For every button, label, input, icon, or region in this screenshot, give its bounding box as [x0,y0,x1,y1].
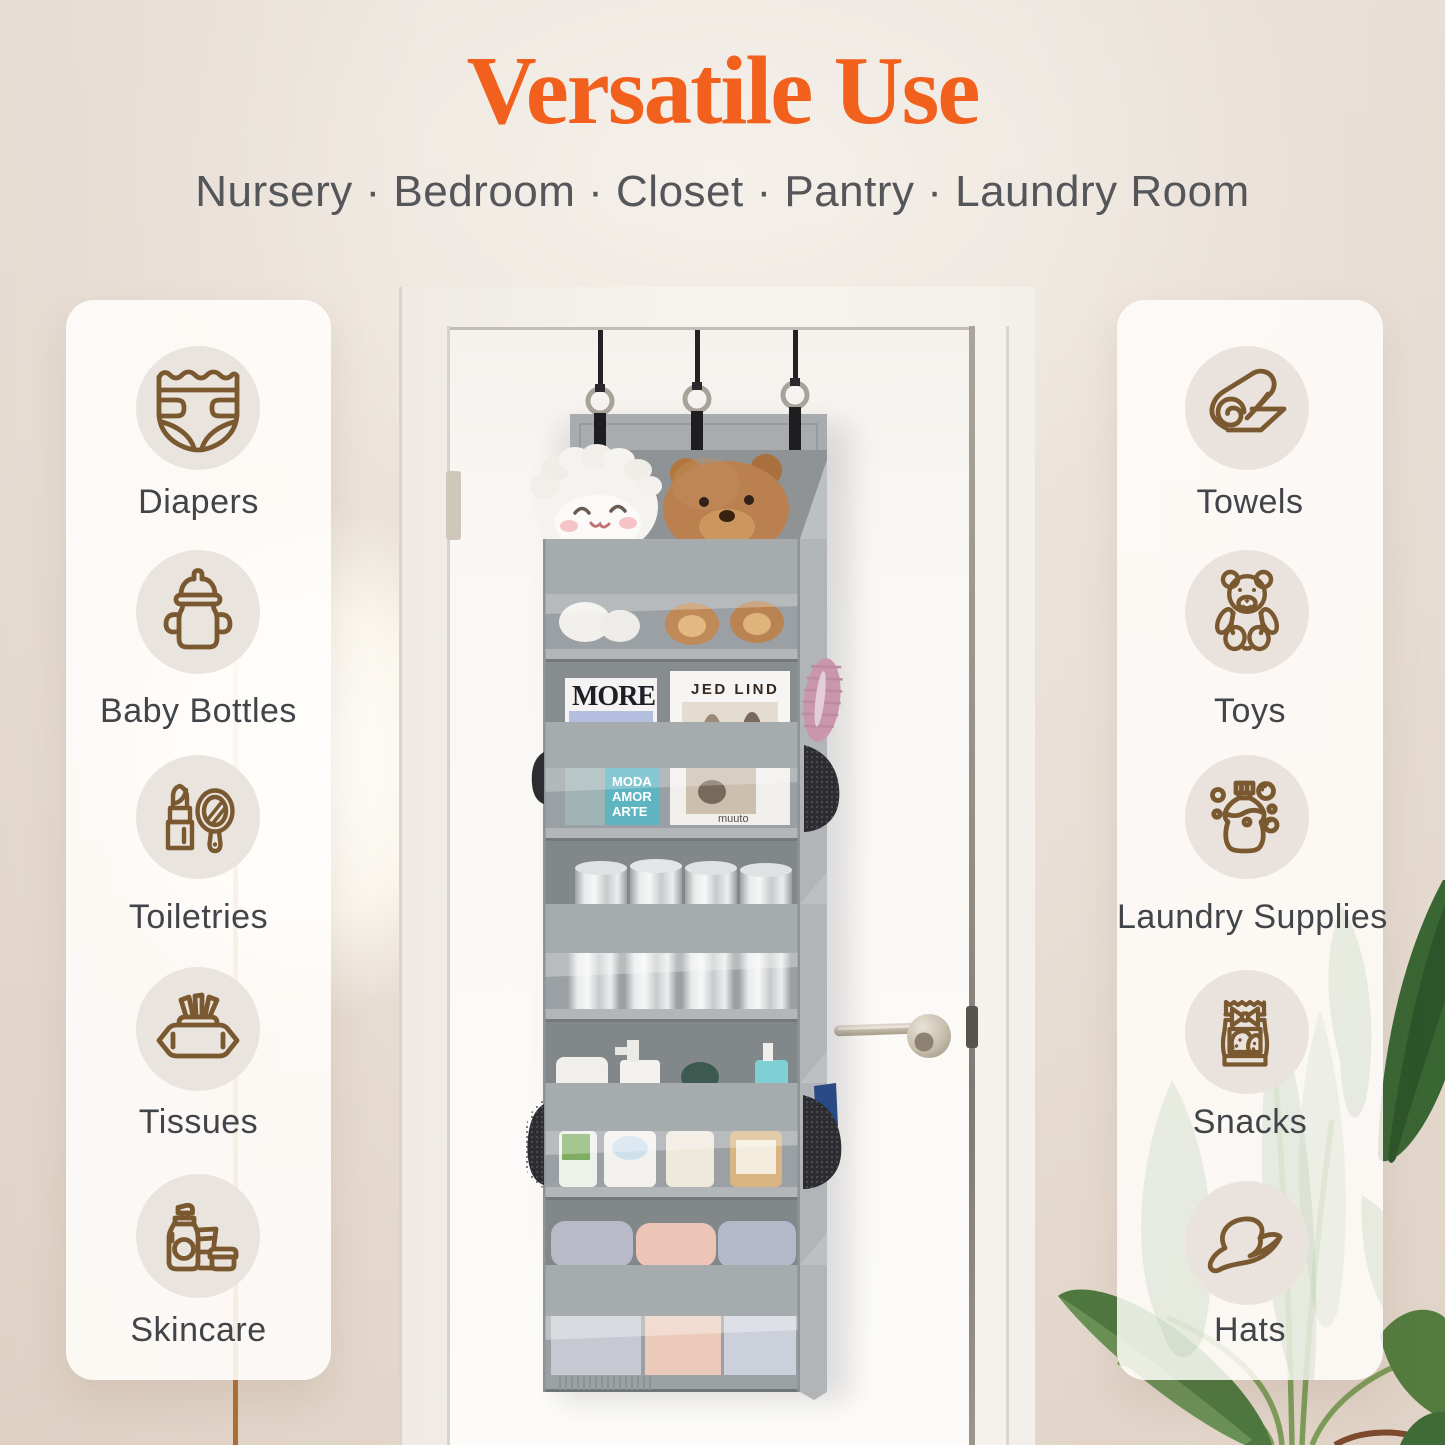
svg-text:JED LIND: JED LIND [691,681,779,698]
svg-text:muuto: muuto [718,813,749,825]
svg-text:AMOR: AMOR [612,789,652,804]
svg-text:ARTE: ARTE [612,804,648,819]
svg-text:MORE: MORE [572,681,655,712]
